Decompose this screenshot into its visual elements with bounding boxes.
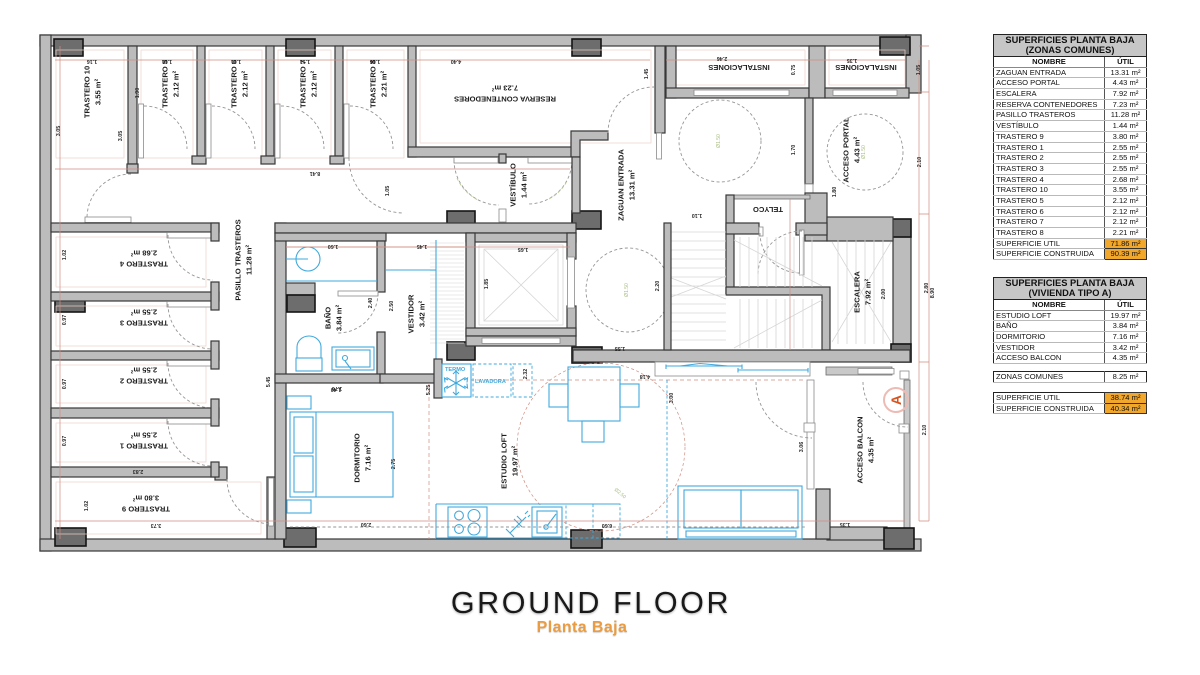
- svg-text:3.73: 3.73: [151, 522, 162, 528]
- svg-text:TRASTERO 62.12 m²: TRASTERO 62.12 m²: [230, 60, 250, 108]
- svg-text:1.60: 1.60: [328, 243, 339, 249]
- svg-text:ZAGUAN ENTRADA13.31 m²: ZAGUAN ENTRADA13.31 m²: [617, 149, 637, 221]
- svg-text:1.70: 1.70: [791, 145, 797, 156]
- svg-text:1.90: 1.90: [135, 88, 141, 99]
- svg-text:PASILLO TRASTEROS11.28 m²: PASILLO TRASTEROS11.28 m²: [234, 219, 254, 300]
- svg-text:2.60: 2.60: [361, 521, 372, 527]
- svg-text:1.11: 1.11: [300, 58, 310, 64]
- svg-text:3.06: 3.06: [799, 442, 805, 453]
- svg-text:Ø1.50: Ø1.50: [861, 145, 867, 159]
- svg-text:1.10: 1.10: [692, 212, 703, 218]
- svg-text:5.45: 5.45: [266, 377, 272, 388]
- svg-text:2.40: 2.40: [368, 298, 374, 309]
- svg-text:ACCESO PORTAL4.43 m²: ACCESO PORTAL4.43 m²: [842, 117, 862, 183]
- svg-text:3.00: 3.00: [669, 393, 675, 404]
- svg-text:5.25: 5.25: [426, 385, 432, 396]
- svg-text:2.20: 2.20: [655, 281, 661, 292]
- svg-text:VESTÍBULO1.44 m²: VESTÍBULO1.44 m²: [509, 163, 529, 207]
- svg-text:ESCALERA7.92 m²: ESCALERA7.92 m²: [853, 271, 873, 313]
- svg-text:2.00: 2.00: [881, 289, 887, 300]
- svg-text:TRASTERO 22.55 m²: TRASTERO 22.55 m²: [120, 366, 168, 386]
- svg-text:BAÑO3.84 m²: BAÑO3.84 m²: [324, 304, 344, 331]
- svg-text:TRASTERO 82.21 m²: TRASTERO 82.21 m²: [369, 60, 389, 108]
- svg-text:TRASTERO 72.12 m²: TRASTERO 72.12 m²: [299, 60, 319, 108]
- svg-text:1.55: 1.55: [615, 345, 626, 351]
- svg-text:INSTALACIONES: INSTALACIONES: [708, 63, 769, 72]
- svg-text:1.65: 1.65: [518, 246, 529, 252]
- svg-text:6.60: 6.60: [602, 522, 613, 528]
- svg-text:TRASTERO 93.80 m²: TRASTERO 93.80 m²: [122, 494, 170, 514]
- svg-text:1.40: 1.40: [331, 386, 342, 392]
- svg-text:2.50: 2.50: [389, 301, 395, 312]
- svg-text:LAVADORA: LAVADORA: [475, 379, 506, 385]
- svg-text:0.97: 0.97: [62, 315, 68, 326]
- svg-text:1.45: 1.45: [417, 243, 428, 249]
- svg-text:RESERVA CONTENEDORES7.23 m²: RESERVA CONTENEDORES7.23 m²: [454, 84, 556, 104]
- svg-text:ESTUDIO LOFT19.97 m²: ESTUDIO LOFT19.97 m²: [500, 433, 520, 489]
- svg-text:1.35: 1.35: [840, 521, 851, 527]
- svg-text:3.05: 3.05: [56, 126, 62, 137]
- svg-text:A: A: [888, 395, 904, 405]
- svg-text:1.16: 1.16: [370, 58, 381, 64]
- svg-text:DORMITORIO7.16 m²: DORMITORIO7.16 m²: [353, 433, 373, 482]
- svg-text:TRASTERO 52.12 m²: TRASTERO 52.12 m²: [161, 59, 181, 108]
- svg-text:1.80: 1.80: [832, 187, 838, 198]
- svg-text:2.10: 2.10: [917, 157, 923, 168]
- svg-text:ACCESO BALCON4.35 m²: ACCESO BALCON4.35 m²: [856, 416, 876, 483]
- svg-text:Ø1.50: Ø1.50: [716, 134, 722, 148]
- svg-text:Ø2.50: Ø2.50: [613, 487, 627, 500]
- svg-text:3.05: 3.05: [118, 131, 124, 142]
- svg-text:1.05: 1.05: [385, 186, 391, 197]
- svg-text:1.35: 1.35: [847, 57, 858, 63]
- svg-text:TRASTERO 103.55 m²: TRASTERO 103.55 m²: [83, 66, 103, 118]
- svg-text:0.75: 0.75: [791, 65, 797, 76]
- svg-text:TRASTERO 42.68 m²: TRASTERO 42.68 m²: [119, 249, 168, 269]
- svg-text:4.40: 4.40: [451, 58, 462, 64]
- svg-text:8.90: 8.90: [930, 288, 936, 299]
- svg-text:1.45: 1.45: [644, 69, 650, 80]
- svg-text:2.10: 2.10: [922, 425, 928, 436]
- svg-text:1.11: 1.11: [231, 58, 241, 64]
- svg-text:0.97: 0.97: [62, 379, 68, 390]
- svg-text:1.85: 1.85: [484, 279, 490, 290]
- svg-text:2.46: 2.46: [717, 55, 728, 61]
- svg-text:2.83: 2.83: [133, 468, 144, 474]
- svg-text:1.05: 1.05: [916, 65, 922, 76]
- svg-text:TELYCO: TELYCO: [753, 205, 783, 214]
- svg-text:0.97: 0.97: [62, 436, 68, 447]
- svg-text:8.41: 8.41: [310, 170, 321, 176]
- svg-text:TRASTERO 32.55 m²: TRASTERO 32.55 m²: [120, 308, 168, 328]
- svg-text:1.11: 1.11: [162, 58, 172, 64]
- svg-text:VESTIDOR3.42 m²: VESTIDOR3.42 m²: [407, 294, 427, 333]
- svg-text:1.02: 1.02: [62, 250, 68, 261]
- svg-text:2.75: 2.75: [391, 459, 397, 470]
- svg-text:TRASTERO 12.55 m²: TRASTERO 12.55 m²: [119, 431, 168, 451]
- svg-text:2.32: 2.32: [523, 369, 529, 380]
- svg-text:1.02: 1.02: [84, 501, 90, 512]
- svg-text:Ø1.50: Ø1.50: [624, 283, 630, 297]
- svg-text:INSTALACIONES: INSTALACIONES: [835, 63, 896, 72]
- svg-text:4.18: 4.18: [640, 373, 651, 379]
- svg-text:1.16: 1.16: [87, 58, 98, 64]
